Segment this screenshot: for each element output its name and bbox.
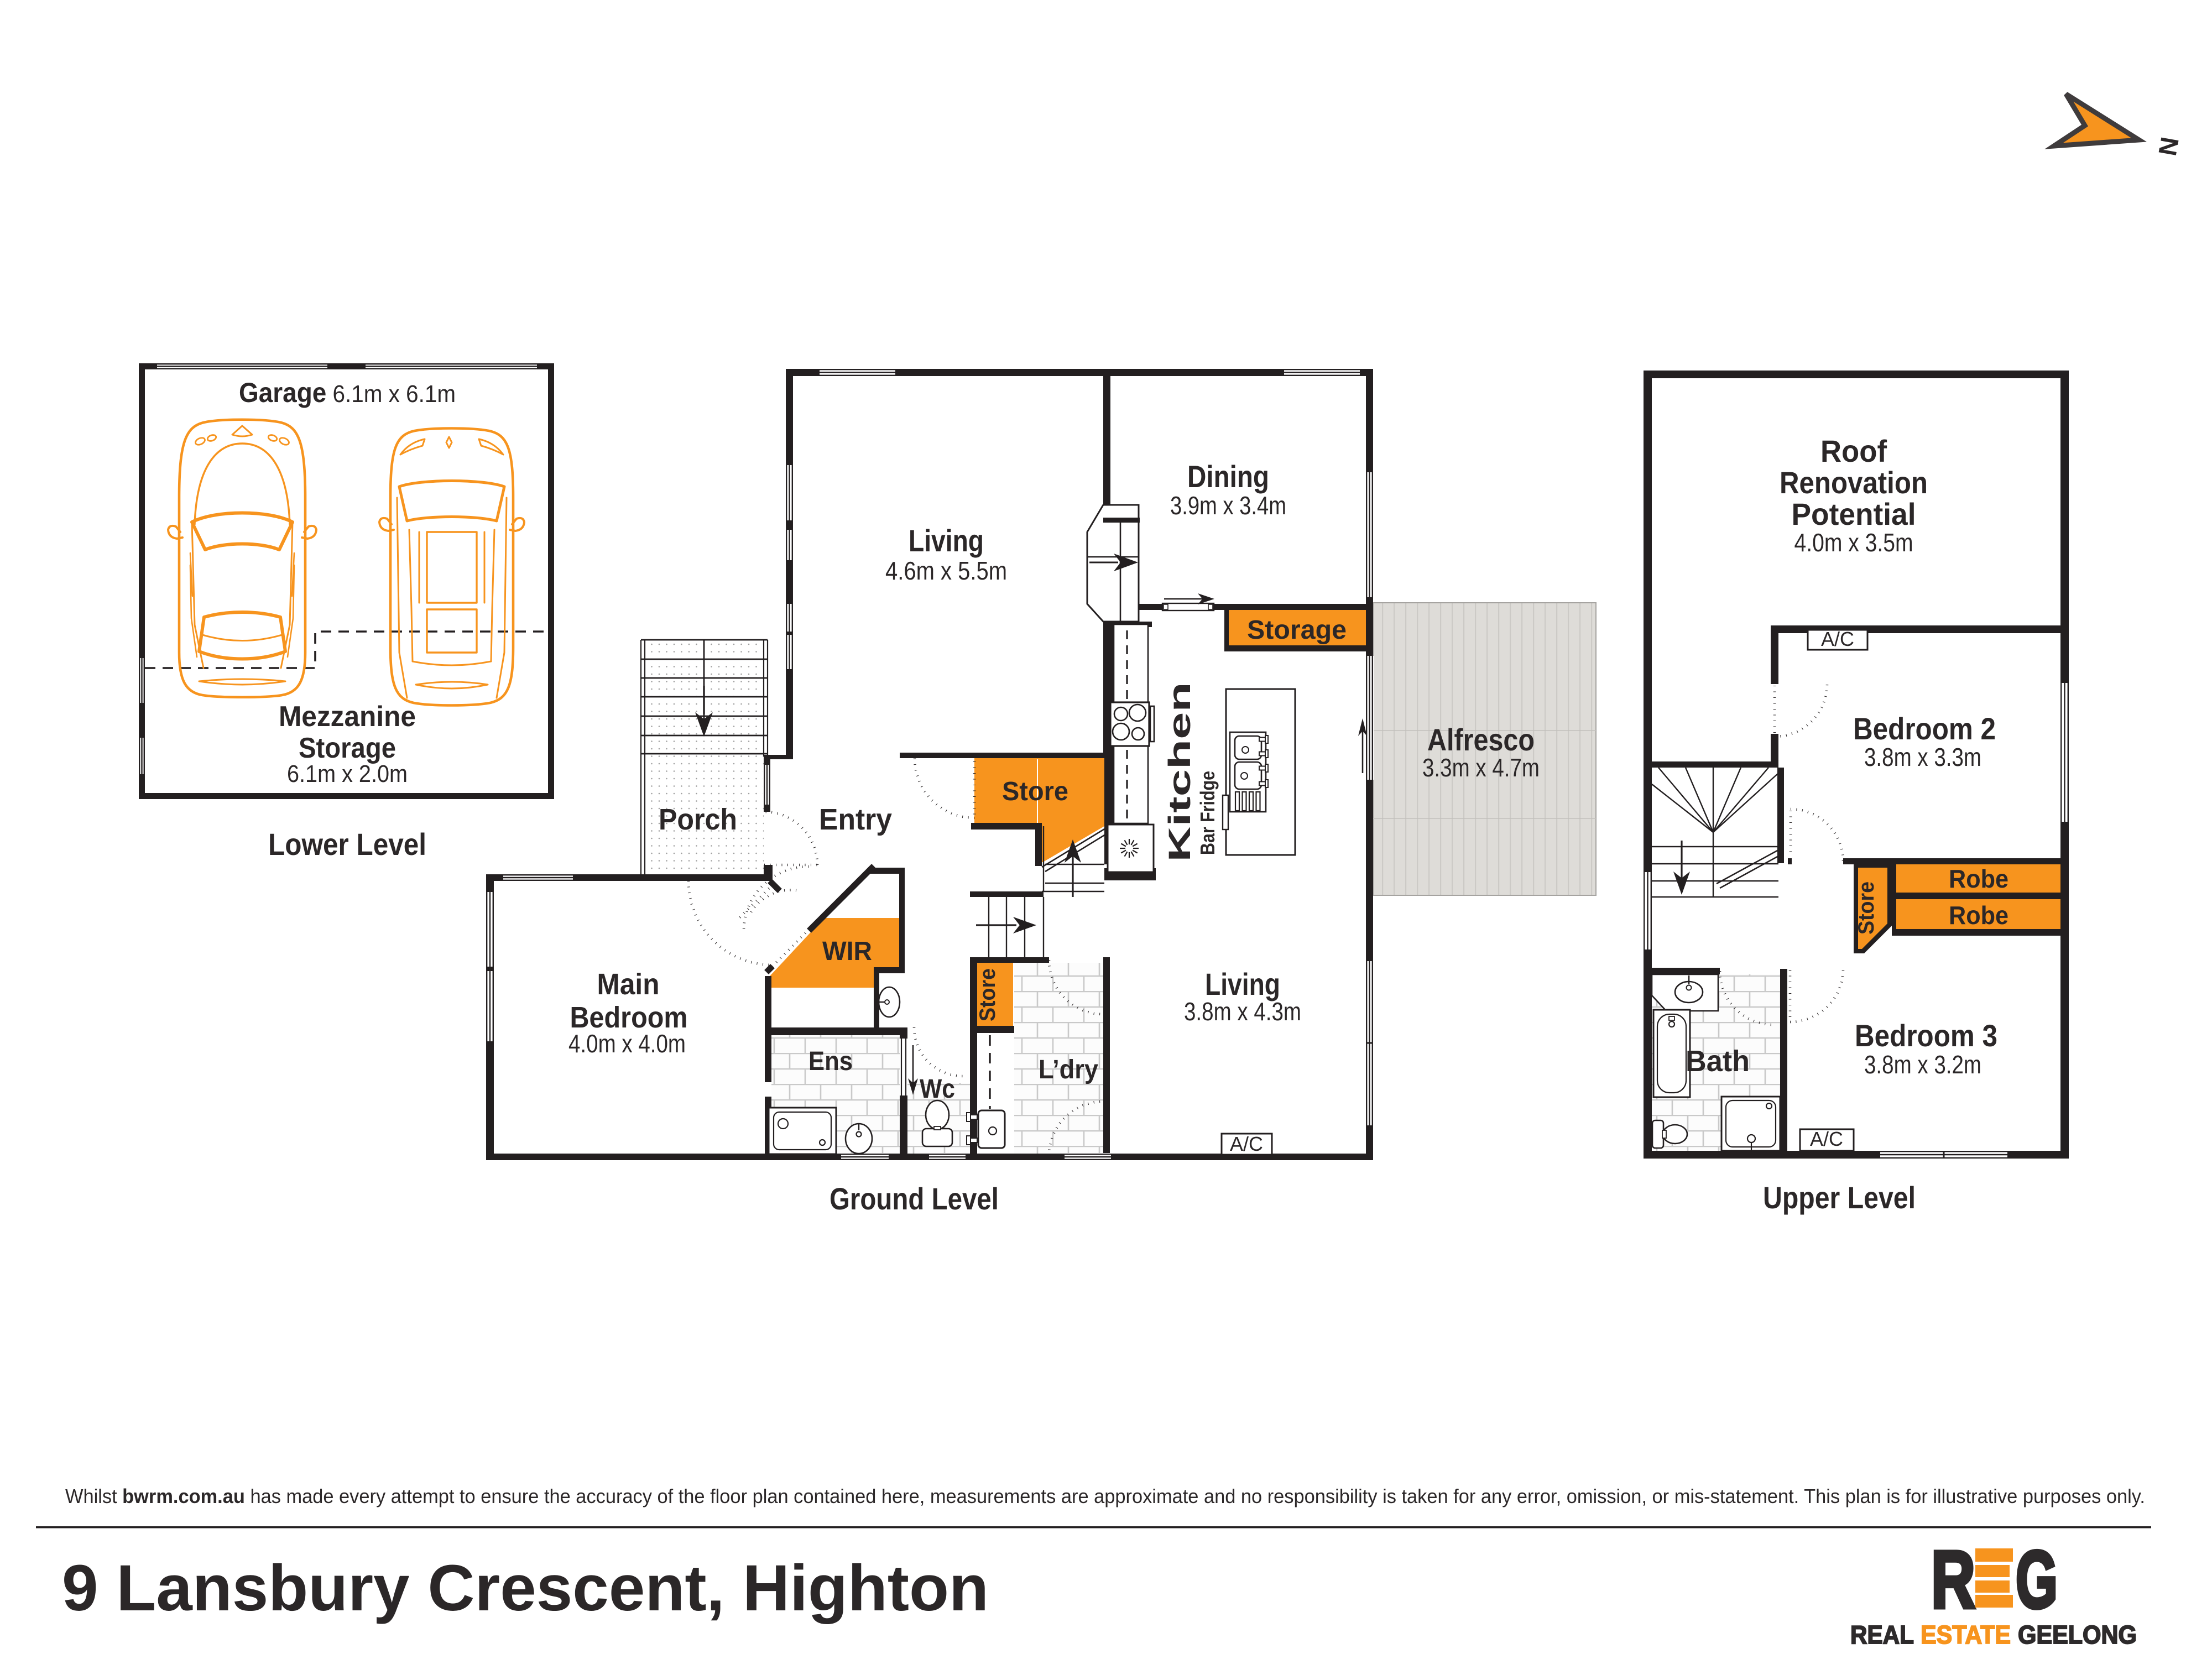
svg-text:GEELONG: GEELONG (2018, 1620, 2137, 1649)
svg-text:Roof: Roof (1820, 434, 1887, 468)
svg-text:Living: Living (1205, 967, 1280, 1001)
svg-text:Main: Main (597, 968, 660, 1001)
svg-text:Entry: Entry (819, 803, 892, 836)
svg-text:A/C: A/C (1230, 1133, 1263, 1155)
svg-text:6.1m x 2.0m: 6.1m x 2.0m (287, 760, 408, 787)
svg-text:Storage: Storage (299, 732, 396, 764)
svg-text:Store: Store (1854, 881, 1879, 935)
svg-text:4.0m x 4.0m: 4.0m x 4.0m (568, 1029, 686, 1058)
svg-text:Garage 6.1m x 6.1m: Garage 6.1m x 6.1m (239, 377, 456, 408)
svg-text:Robe: Robe (1949, 864, 2008, 893)
svg-text:WIR: WIR (822, 937, 872, 966)
svg-text:G: G (2016, 1535, 2058, 1625)
svg-text:Potential: Potential (1792, 497, 1916, 531)
svg-text:Store: Store (975, 968, 1000, 1021)
svg-text:ESTATE: ESTATE (1921, 1620, 2011, 1649)
svg-text:Whilst bwrm.com.au has made ev: Whilst bwrm.com.au has made every attemp… (65, 1485, 2145, 1507)
svg-text:Storage: Storage (1247, 615, 1347, 645)
svg-text:Bar Fridge: Bar Fridge (1196, 771, 1219, 855)
svg-text:A/C: A/C (1821, 628, 1854, 650)
svg-text:9 Lansbury Crescent, Highton: 9 Lansbury Crescent, Highton (62, 1552, 989, 1625)
svg-text:Dining: Dining (1187, 459, 1269, 494)
svg-text:Living: Living (909, 523, 984, 558)
svg-text:3.9m x 3.4m: 3.9m x 3.4m (1170, 491, 1286, 520)
svg-text:Wc: Wc (920, 1074, 955, 1104)
svg-text:Upper Level: Upper Level (1763, 1180, 1916, 1215)
svg-text:Mezzanine: Mezzanine (279, 701, 416, 733)
svg-text:REAL: REAL (1850, 1620, 1914, 1649)
svg-text:Robe: Robe (1949, 901, 2008, 930)
svg-text:3.8m x 3.2m: 3.8m x 3.2m (1864, 1050, 1981, 1079)
svg-text:Ground Level: Ground Level (830, 1181, 999, 1216)
svg-text:Bath: Bath (1686, 1045, 1750, 1078)
svg-text:Bedroom 2: Bedroom 2 (1853, 711, 1996, 746)
svg-text:R: R (1931, 1535, 1975, 1625)
svg-text:Renovation: Renovation (1780, 465, 1928, 500)
svg-text:Porch: Porch (659, 803, 737, 836)
svg-text:Ens: Ens (808, 1047, 853, 1076)
svg-text:Store: Store (1002, 777, 1068, 806)
svg-text:Lower Level: Lower Level (268, 827, 426, 862)
svg-text:4.6m x 5.5m: 4.6m x 5.5m (885, 556, 1007, 585)
svg-text:3.8m x 4.3m: 3.8m x 4.3m (1184, 997, 1301, 1026)
svg-text:3.3m x 4.7m: 3.3m x 4.7m (1422, 753, 1540, 782)
svg-text:Alfresco: Alfresco (1427, 722, 1535, 757)
svg-text:4.0m x 3.5m: 4.0m x 3.5m (1794, 528, 1913, 557)
svg-text:Bedroom 3: Bedroom 3 (1855, 1018, 1997, 1053)
svg-text:3.8m x 3.3m: 3.8m x 3.3m (1864, 743, 1981, 771)
svg-text:A/C: A/C (1810, 1128, 1843, 1150)
svg-text:Kitchen: Kitchen (1162, 682, 1197, 862)
svg-text:L’dry: L’dry (1039, 1055, 1098, 1084)
